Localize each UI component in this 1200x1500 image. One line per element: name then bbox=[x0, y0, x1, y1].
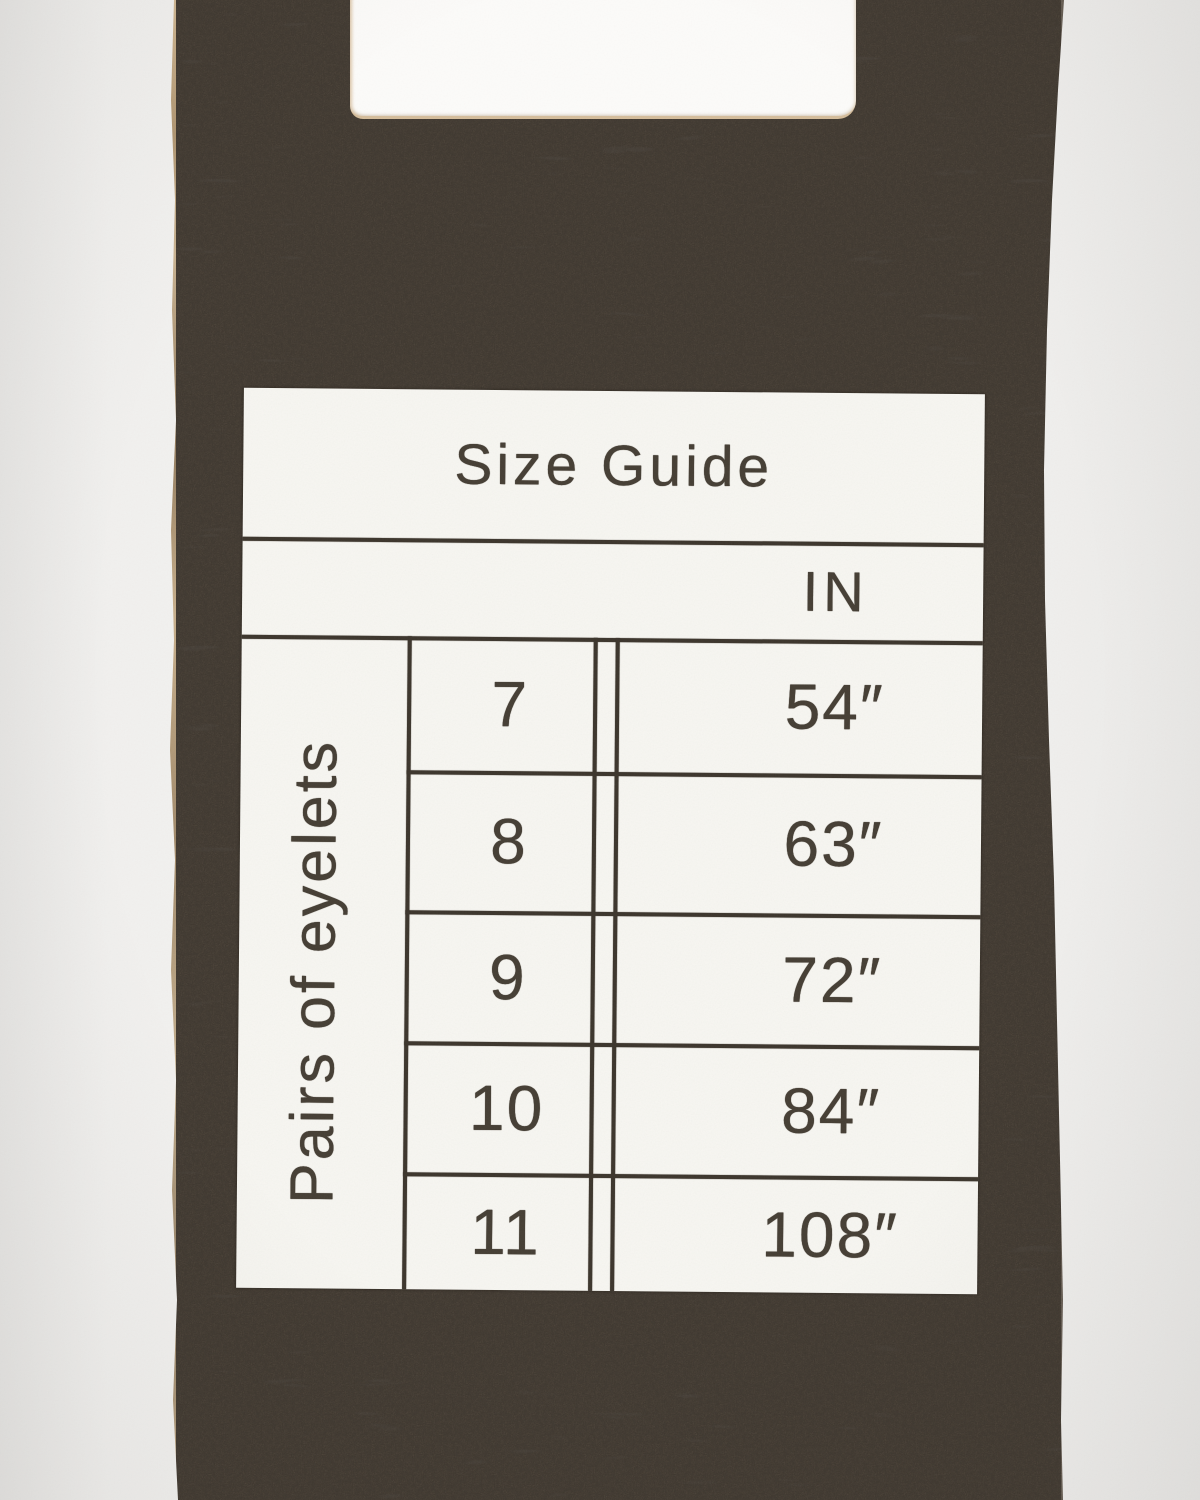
eyelet-count-cell: 10 bbox=[407, 1041, 590, 1174]
size-guide-sticker: Size Guide IN Pairs of eyelets 7 54″ 8 6… bbox=[236, 388, 985, 1294]
length-inches-cell: 63″ bbox=[617, 772, 981, 915]
leather-cut-edge-right bbox=[1061, 0, 1064, 1500]
eyelet-count-cell: 7 bbox=[411, 636, 594, 772]
length-inches-cell: 54″ bbox=[619, 638, 983, 775]
eyelet-count-cell: 9 bbox=[408, 910, 591, 1043]
photo-backdrop: Size Guide IN Pairs of eyelets 7 54″ 8 6… bbox=[0, 0, 1200, 1500]
row-axis-label: Pairs of eyelets bbox=[277, 738, 351, 1204]
length-inches-cell: 72″ bbox=[616, 912, 980, 1046]
eyelet-count-cell: 8 bbox=[409, 770, 592, 912]
length-inches-cell: 84″ bbox=[615, 1043, 979, 1177]
hang-tag-cutout-hole bbox=[350, 0, 856, 119]
eyelet-count-cell: 11 bbox=[406, 1172, 589, 1291]
row-axis-label-cell: Pairs of eyelets bbox=[236, 635, 408, 1289]
leather-cut-edge-left bbox=[168, 0, 176, 1500]
unit-header-in: IN bbox=[620, 540, 984, 641]
suede-hang-tag: Size Guide IN Pairs of eyelets 7 54″ 8 6… bbox=[168, 0, 1064, 1500]
size-guide-title: Size Guide bbox=[243, 388, 985, 543]
length-inches-cell: 108″ bbox=[614, 1174, 978, 1294]
